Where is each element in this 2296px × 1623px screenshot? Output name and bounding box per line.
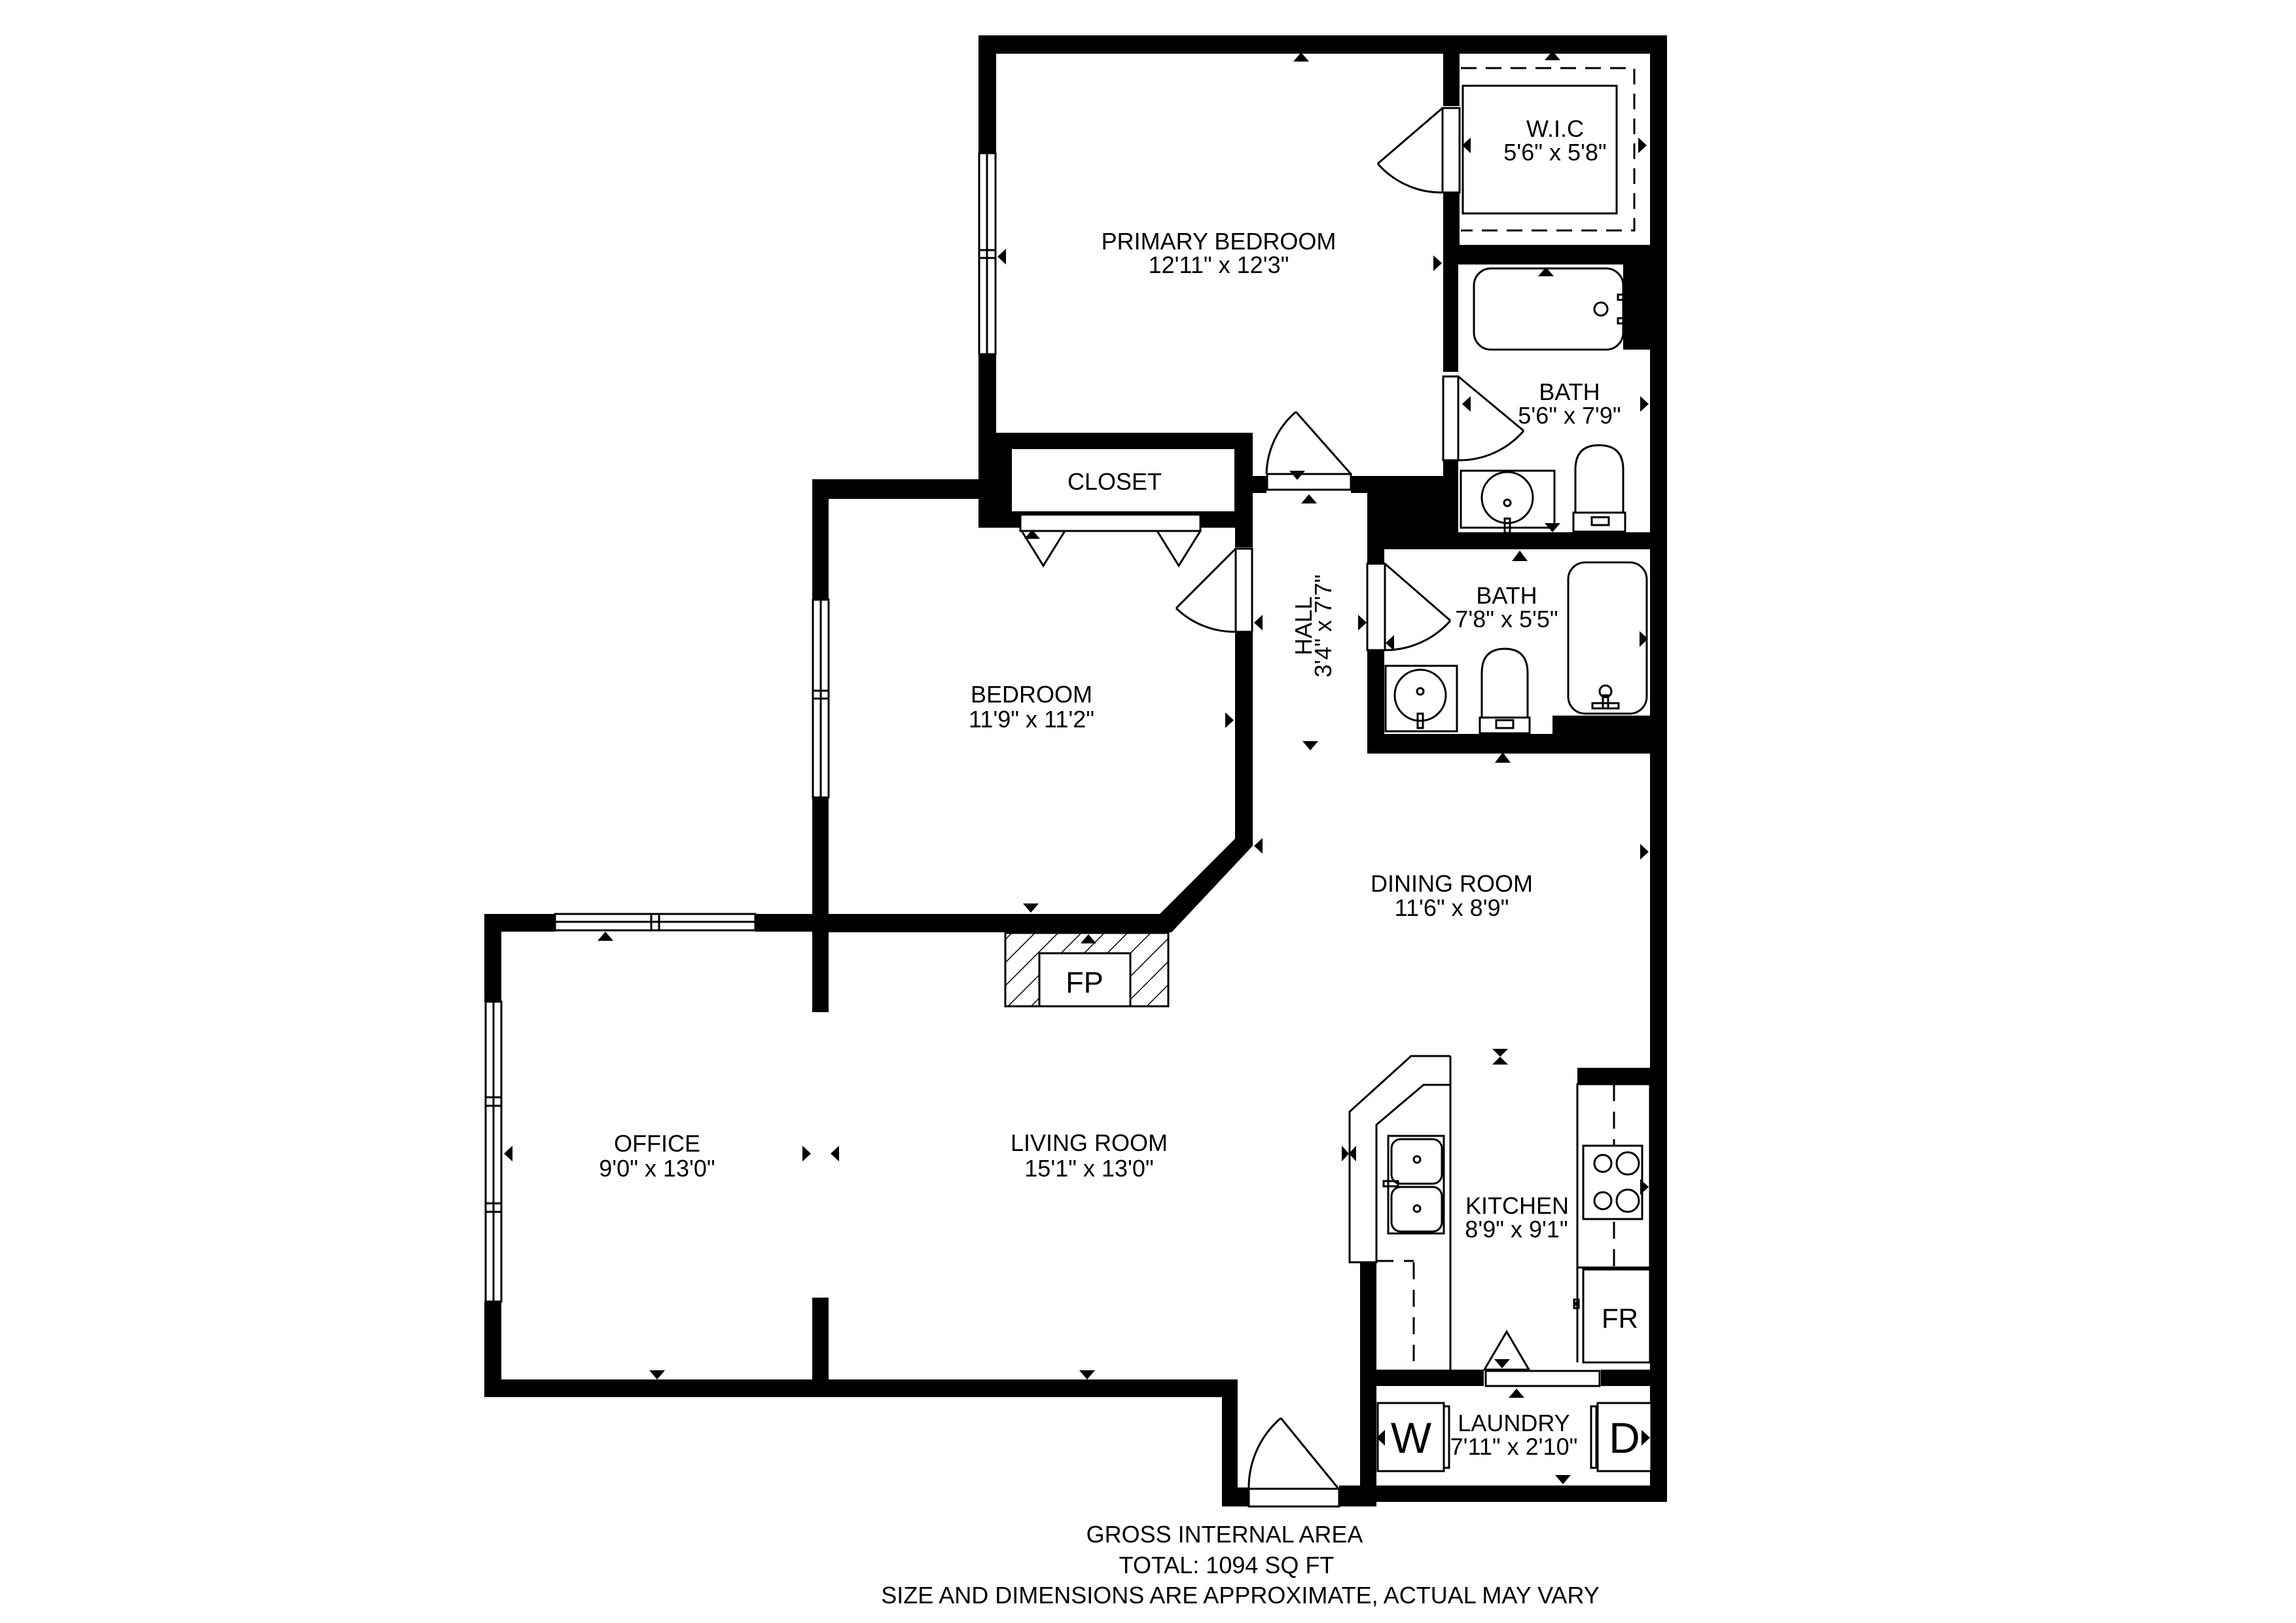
svg-text:9'0" x 13'0": 9'0" x 13'0" (599, 1155, 715, 1182)
svg-text:W.I.C: W.I.C (1526, 115, 1584, 142)
svg-text:7'11" x 2'10": 7'11" x 2'10" (1450, 1433, 1578, 1460)
svg-text:8'9" x 9'1": 8'9" x 9'1" (1465, 1216, 1568, 1243)
svg-text:12'11" x 12'3": 12'11" x 12'3" (1149, 251, 1289, 278)
svg-text:CLOSET: CLOSET (1067, 468, 1162, 495)
svg-text:7'8" x 5'5": 7'8" x 5'5" (1455, 606, 1558, 632)
svg-text:BEDROOM: BEDROOM (971, 681, 1092, 708)
svg-text:15'1" x 13'0": 15'1" x 13'0" (1024, 1155, 1153, 1182)
svg-text:GROSS INTERNAL AREA: GROSS INTERNAL AREA (1086, 1521, 1363, 1548)
svg-text:W: W (1391, 1413, 1432, 1462)
svg-text:OFFICE: OFFICE (614, 1130, 700, 1157)
svg-text:5'6" x 5'8": 5'6" x 5'8" (1503, 139, 1606, 166)
svg-text:5'6" x 7'9": 5'6" x 7'9" (1518, 402, 1621, 429)
svg-text:PRIMARY BEDROOM: PRIMARY BEDROOM (1102, 228, 1336, 255)
svg-text:LAUNDRY: LAUNDRY (1458, 1410, 1570, 1436)
svg-text:FR: FR (1602, 1303, 1638, 1334)
svg-text:11'9" x 11'2": 11'9" x 11'2" (969, 706, 1094, 733)
svg-text:BATH: BATH (1476, 582, 1537, 609)
svg-text:3'4" x 7'7": 3'4" x 7'7" (1310, 574, 1336, 677)
svg-text:FP: FP (1066, 966, 1103, 999)
svg-text:KITCHEN: KITCHEN (1465, 1192, 1569, 1219)
svg-text:11'6" x 8'9": 11'6" x 8'9" (1395, 894, 1509, 921)
svg-text:TOTAL: 1094 SQ FT: TOTAL: 1094 SQ FT (1119, 1552, 1335, 1578)
svg-text:DINING ROOM: DINING ROOM (1371, 870, 1533, 897)
svg-text:LIVING ROOM: LIVING ROOM (1011, 1129, 1168, 1156)
svg-text:SIZE AND DIMENSIONS ARE APPROX: SIZE AND DIMENSIONS ARE APPROXIMATE, ACT… (881, 1582, 1600, 1609)
svg-text:D: D (1609, 1413, 1640, 1462)
svg-text:BATH: BATH (1539, 378, 1600, 405)
